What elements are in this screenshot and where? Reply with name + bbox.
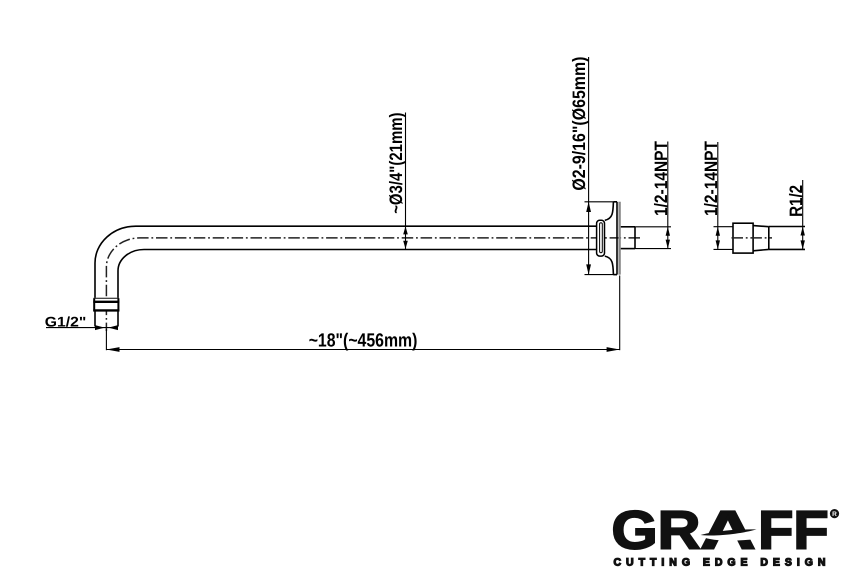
svg-text:1/2-14NPT: 1/2-14NPT — [651, 141, 671, 216]
svg-text:1/2-14NPT: 1/2-14NPT — [701, 141, 721, 216]
svg-text:R: R — [832, 511, 837, 518]
svg-text:FF: FF — [758, 500, 829, 560]
svg-text:G1/2": G1/2" — [45, 314, 87, 330]
svg-text:Ø2-9/16"(Ø65mm): Ø2-9/16"(Ø65mm) — [569, 57, 589, 191]
svg-text:~18"(~456mm): ~18"(~456mm) — [309, 331, 418, 352]
svg-text:GR: GR — [612, 500, 701, 560]
svg-text:R1/2: R1/2 — [786, 185, 806, 217]
svg-text:~Ø3/4"(21mm): ~Ø3/4"(21mm) — [386, 112, 406, 213]
